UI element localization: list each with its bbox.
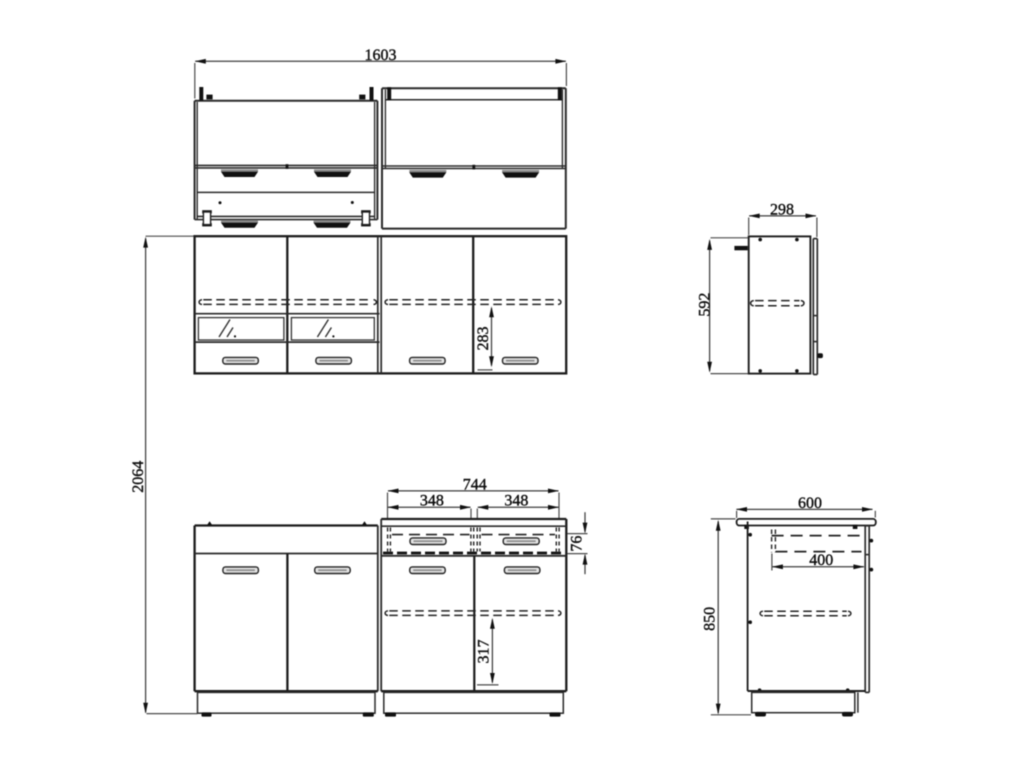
svg-text:76: 76: [569, 536, 586, 552]
svg-text:2064: 2064: [130, 461, 147, 493]
svg-text:348: 348: [504, 493, 528, 510]
svg-text:348: 348: [420, 493, 444, 510]
svg-text:744: 744: [463, 476, 487, 493]
svg-text:592: 592: [696, 293, 713, 317]
svg-text:1603: 1603: [365, 47, 397, 64]
svg-text:283: 283: [475, 327, 492, 351]
svg-text:400: 400: [809, 552, 833, 569]
svg-text:850: 850: [702, 607, 719, 631]
svg-text:298: 298: [770, 201, 794, 218]
svg-text:600: 600: [798, 495, 822, 512]
svg-text:317: 317: [476, 640, 493, 664]
